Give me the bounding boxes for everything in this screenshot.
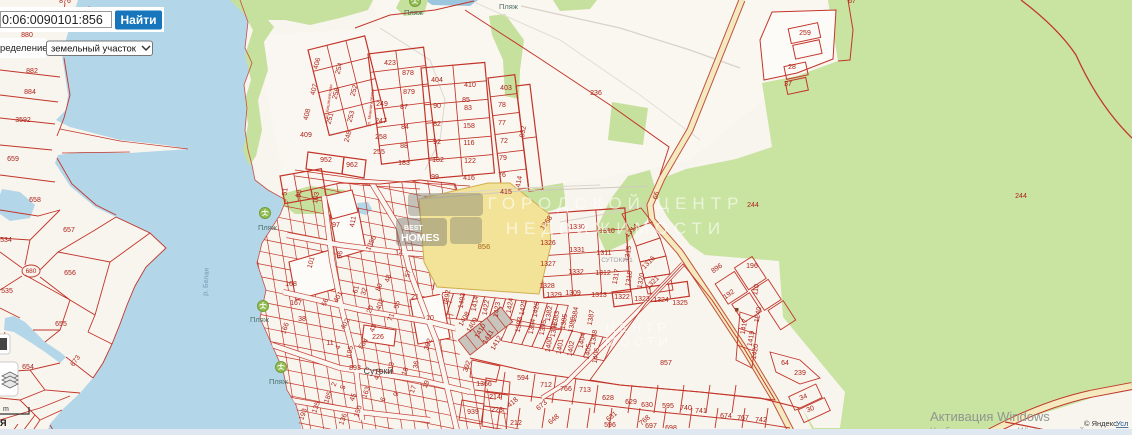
svg-text:884: 884: [24, 89, 36, 96]
svg-text:239: 239: [794, 370, 806, 377]
svg-text:122: 122: [464, 158, 476, 165]
svg-text:76: 76: [498, 172, 506, 179]
svg-text:741: 741: [695, 408, 707, 415]
svg-text:212: 212: [510, 420, 522, 427]
svg-text:258: 258: [375, 134, 387, 141]
svg-text:72: 72: [500, 138, 508, 145]
svg-text:196: 196: [746, 263, 758, 270]
svg-text:656: 656: [64, 270, 76, 277]
svg-text:84: 84: [401, 124, 409, 131]
svg-text:97: 97: [332, 222, 340, 229]
svg-text:Усл: Усл: [1116, 419, 1128, 428]
svg-text:1324: 1324: [653, 297, 669, 304]
svg-text:962: 962: [346, 162, 358, 169]
svg-text:1329: 1329: [546, 292, 562, 299]
svg-text:857: 857: [660, 360, 672, 367]
svg-text:882: 882: [26, 68, 38, 75]
svg-text:410: 410: [464, 82, 476, 89]
svg-text:Я: Я: [0, 418, 6, 428]
svg-text:21: 21: [411, 294, 419, 301]
svg-text:78: 78: [498, 102, 506, 109]
svg-text:158: 158: [463, 123, 475, 130]
svg-text:674: 674: [720, 413, 732, 420]
svg-text:594: 594: [517, 375, 529, 382]
svg-text:1325: 1325: [672, 300, 688, 307]
svg-text:534: 534: [0, 237, 12, 244]
svg-text:236: 236: [590, 90, 602, 97]
svg-text:628: 628: [602, 395, 614, 402]
svg-text:167: 167: [290, 300, 302, 307]
svg-text:1332: 1332: [568, 269, 584, 276]
svg-text:116: 116: [463, 140, 474, 147]
svg-text:38: 38: [298, 316, 306, 323]
svg-text:423: 423: [384, 60, 396, 67]
svg-text:1326: 1326: [540, 240, 556, 247]
svg-text:223: 223: [491, 407, 503, 414]
svg-text:земельный участок: земельный участок: [51, 44, 137, 55]
svg-text:244: 244: [747, 202, 759, 209]
svg-text:© Яндекс: © Яндекс: [1084, 419, 1117, 428]
svg-text:14: 14: [395, 250, 403, 257]
svg-text:403: 403: [500, 85, 512, 92]
svg-text:51: 51: [281, 187, 289, 196]
svg-text:55: 55: [393, 300, 401, 309]
svg-text:226: 226: [372, 334, 384, 341]
svg-text:214: 214: [489, 394, 501, 401]
svg-text:880: 880: [21, 32, 33, 39]
svg-text:77: 77: [498, 120, 506, 127]
svg-text:659: 659: [7, 156, 19, 163]
svg-text:ЦЕНТР: ЦЕНТР: [606, 320, 670, 335]
svg-text:404: 404: [431, 77, 443, 84]
svg-text:247: 247: [375, 118, 387, 125]
svg-text:98: 98: [295, 189, 303, 198]
svg-text:742: 742: [755, 417, 767, 424]
svg-text:629: 629: [625, 399, 637, 406]
svg-text:92: 92: [433, 139, 441, 146]
svg-text:595: 595: [662, 403, 674, 410]
svg-text:535: 535: [1, 288, 13, 295]
svg-text:255: 255: [373, 149, 385, 156]
svg-text:244: 244: [1015, 193, 1027, 200]
svg-text:11: 11: [326, 340, 333, 347]
svg-text:90: 90: [433, 103, 441, 110]
svg-text:416: 416: [463, 175, 475, 182]
svg-text:m: m: [3, 406, 9, 413]
svg-text:МОСТИ: МОСТИ: [605, 334, 672, 349]
svg-text:939: 939: [467, 409, 479, 416]
svg-text:79: 79: [499, 155, 507, 162]
svg-text:876: 876: [59, 0, 71, 5]
svg-text:893: 893: [349, 365, 361, 372]
svg-text:10: 10: [426, 315, 434, 322]
svg-text:р. Белая: р. Белая: [202, 268, 210, 296]
svg-text:766: 766: [560, 386, 572, 393]
svg-text:Пляж: Пляж: [404, 8, 423, 17]
svg-text:182: 182: [432, 157, 444, 164]
svg-text:67: 67: [848, 0, 856, 5]
svg-text:Найти: Найти: [121, 13, 157, 27]
svg-text:740: 740: [680, 405, 692, 412]
svg-text:712: 712: [540, 382, 552, 389]
svg-text:249: 249: [376, 101, 388, 108]
svg-text:1331: 1331: [569, 247, 585, 254]
svg-text:87: 87: [400, 104, 408, 111]
svg-text:96: 96: [336, 250, 344, 259]
svg-text:88: 88: [400, 143, 408, 150]
svg-text:1322: 1322: [614, 294, 630, 301]
svg-text:713: 713: [579, 387, 591, 394]
svg-text:37: 37: [784, 81, 792, 88]
svg-text:Активация Windows: Активация Windows: [930, 409, 1050, 424]
svg-text:0:06:0090101:856: 0:06:0090101:856: [2, 13, 103, 27]
svg-text:697: 697: [645, 423, 657, 430]
svg-text:Сутоки: Сутоки: [364, 366, 393, 376]
svg-text:Пляж: Пляж: [499, 2, 518, 11]
svg-text:85: 85: [462, 97, 470, 104]
svg-text:ГОРОДСКОЙ ЦЕНТР: ГОРОДСКОЙ ЦЕНТР: [488, 194, 745, 213]
svg-text:1309: 1309: [565, 290, 581, 297]
svg-text:856: 856: [478, 242, 491, 251]
svg-text:879: 879: [403, 89, 415, 96]
svg-text:36: 36: [412, 360, 420, 369]
svg-text:409: 409: [300, 132, 312, 139]
svg-text:658: 658: [29, 197, 41, 204]
svg-text:HOMES: HOMES: [401, 232, 440, 244]
svg-text:183: 183: [398, 160, 410, 167]
svg-text:Пляж: Пляж: [269, 377, 288, 386]
svg-text:64: 64: [781, 360, 789, 367]
svg-text:1312: 1312: [595, 270, 611, 277]
svg-text:1366: 1366: [476, 381, 492, 388]
svg-text:BEST: BEST: [404, 225, 423, 232]
svg-text:НЕДВИЖИМОСТИ: НЕДВИЖИМОСТИ: [506, 219, 726, 238]
svg-text:654: 654: [22, 364, 34, 371]
svg-text:83: 83: [464, 105, 472, 112]
svg-text:99: 99: [431, 174, 439, 181]
svg-text:1313: 1313: [591, 292, 607, 299]
svg-text:680: 680: [26, 268, 37, 275]
svg-text:1328: 1328: [539, 283, 555, 290]
svg-text:630: 630: [641, 402, 653, 409]
svg-text:767: 767: [737, 415, 749, 422]
svg-text:Пляж: Пляж: [258, 223, 277, 232]
svg-text:655: 655: [55, 321, 67, 328]
svg-text:ределение:: ределение:: [0, 43, 50, 54]
svg-text:1311: 1311: [596, 250, 611, 257]
svg-text:Пляж: Пляж: [250, 315, 269, 324]
svg-text:СУТОКИ-1: СУТОКИ-1: [601, 257, 633, 264]
svg-text:82: 82: [433, 121, 441, 128]
svg-text:1323: 1323: [634, 296, 650, 303]
svg-text:259: 259: [799, 30, 811, 37]
svg-text:28: 28: [788, 64, 796, 71]
svg-text:878: 878: [402, 70, 414, 77]
svg-text:1327: 1327: [540, 261, 556, 268]
svg-text:3592: 3592: [15, 117, 31, 124]
svg-text:168: 168: [285, 281, 297, 288]
svg-text:657: 657: [63, 227, 75, 234]
svg-text:952: 952: [320, 157, 332, 164]
